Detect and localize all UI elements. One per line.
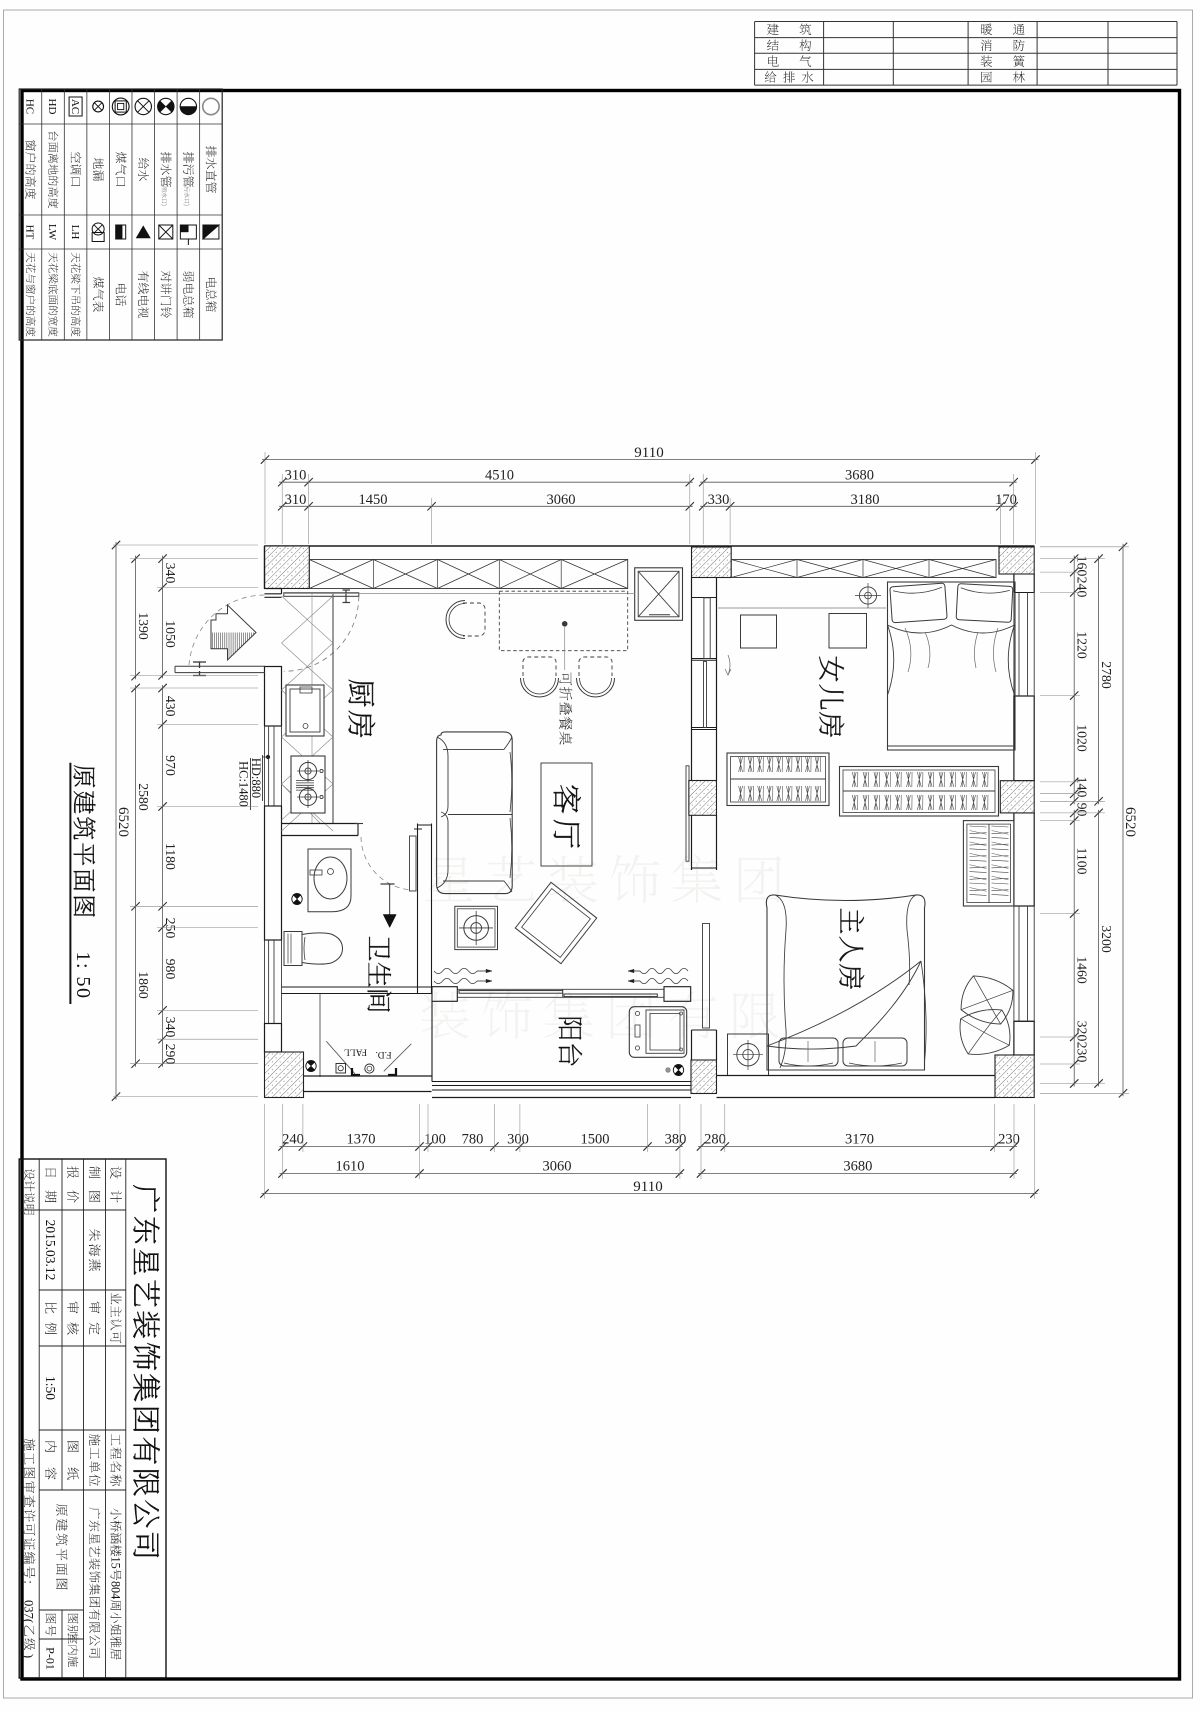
- svg-text:1220: 1220: [1075, 631, 1090, 659]
- svg-text:6520: 6520: [115, 807, 131, 837]
- svg-text:HC:1480: HC:1480: [237, 761, 251, 807]
- svg-text:230: 230: [1075, 1042, 1090, 1063]
- svg-text:430: 430: [163, 696, 178, 717]
- svg-text:15: 15: [109, 1557, 123, 1569]
- svg-text:310: 310: [285, 468, 307, 484]
- svg-text:100: 100: [424, 1132, 446, 1148]
- svg-text:1610: 1610: [336, 1159, 365, 1175]
- svg-text:300: 300: [507, 1132, 529, 1148]
- svg-text:804: 804: [109, 1581, 123, 1599]
- svg-text:1460: 1460: [1075, 956, 1090, 984]
- svg-text:1050: 1050: [163, 620, 178, 648]
- svg-text:3170: 3170: [845, 1132, 874, 1148]
- svg-text:140: 140: [1075, 777, 1090, 798]
- svg-text:280: 280: [704, 1132, 726, 1148]
- svg-text:HC: HC: [24, 99, 36, 114]
- svg-text:310: 310: [285, 492, 307, 508]
- svg-text:240: 240: [1075, 577, 1090, 598]
- svg-text:2015.03.12: 2015.03.12: [43, 1220, 58, 1281]
- svg-text:1860: 1860: [136, 971, 151, 999]
- svg-text:9110: 9110: [633, 1179, 662, 1195]
- svg-text:1020: 1020: [1075, 724, 1090, 752]
- svg-text:380: 380: [665, 1132, 687, 1148]
- svg-text:330: 330: [708, 492, 730, 508]
- svg-text:970: 970: [163, 755, 178, 776]
- svg-text:1: 50: 1: 50: [72, 951, 94, 999]
- svg-text:3060: 3060: [547, 492, 576, 508]
- svg-text:3060: 3060: [543, 1159, 572, 1175]
- svg-text:2580: 2580: [136, 783, 151, 811]
- svg-text:AC: AC: [69, 99, 81, 114]
- svg-text:1450: 1450: [359, 492, 388, 508]
- svg-text:320: 320: [1075, 1021, 1090, 1042]
- svg-text:90: 90: [1075, 803, 1090, 817]
- svg-text:1180: 1180: [163, 843, 178, 870]
- svg-text:1100: 1100: [1075, 847, 1090, 874]
- svg-text:9110: 9110: [634, 445, 663, 461]
- svg-text:3200: 3200: [1099, 925, 1114, 953]
- svg-text:230: 230: [998, 1132, 1020, 1148]
- svg-text:6520: 6520: [1122, 807, 1138, 837]
- svg-text:HT: HT: [24, 225, 36, 240]
- svg-text:780: 780: [462, 1132, 484, 1148]
- svg-text:980: 980: [163, 959, 178, 980]
- svg-text:1390: 1390: [136, 612, 151, 640]
- svg-text:): ): [22, 1654, 36, 1658]
- svg-text:1370: 1370: [347, 1132, 376, 1148]
- svg-text:3180: 3180: [851, 492, 880, 508]
- svg-text:250: 250: [163, 918, 178, 939]
- svg-text:HD: HD: [46, 99, 58, 115]
- svg-text:3680: 3680: [843, 1159, 872, 1175]
- svg-text:1:50: 1:50: [43, 1376, 58, 1400]
- svg-text:240: 240: [282, 1132, 304, 1148]
- svg-text:340: 340: [163, 563, 178, 584]
- svg-text:P-01: P-01: [44, 1647, 58, 1670]
- svg-text:3680: 3680: [845, 468, 874, 484]
- svg-text:1500: 1500: [581, 1132, 610, 1148]
- svg-text:2780: 2780: [1099, 661, 1114, 689]
- svg-text:LH: LH: [69, 225, 81, 240]
- svg-text:037(: 037(: [22, 1600, 36, 1623]
- svg-text:4510: 4510: [485, 468, 514, 484]
- svg-text:340: 340: [163, 1017, 178, 1038]
- svg-text:F.D.: F.D.: [375, 1049, 391, 1059]
- svg-text:290: 290: [163, 1044, 178, 1065]
- svg-text:LW: LW: [46, 224, 58, 241]
- svg-text:FALL: FALL: [344, 1047, 367, 1057]
